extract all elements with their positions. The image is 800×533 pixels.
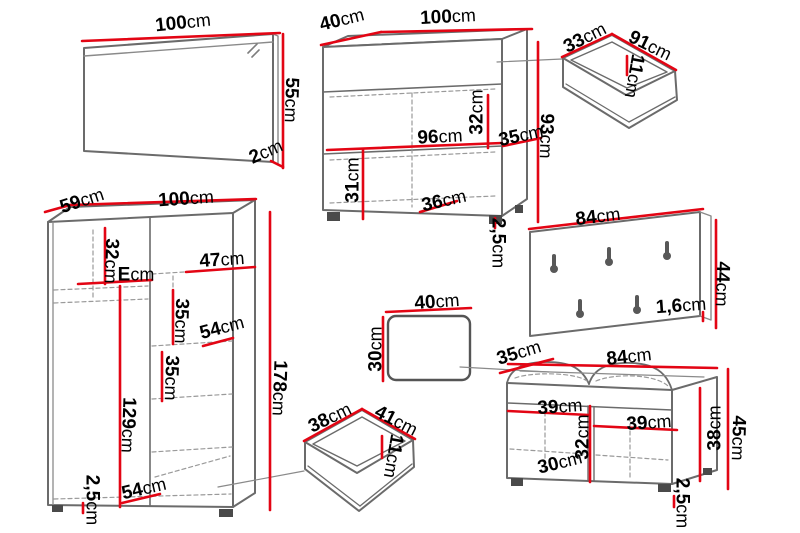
unit-suffix: cm	[705, 405, 725, 429]
unit-suffix: cm	[83, 501, 103, 525]
dim-chest-plinth: 2,5cm	[489, 218, 508, 268]
dim-chest-height: 93cm	[536, 113, 557, 159]
unit-suffix: cm	[281, 98, 302, 123]
dim-coat-panel-height: 44cm	[712, 261, 733, 307]
unit-suffix: cm	[380, 452, 404, 479]
unit-suffix: cm	[343, 157, 363, 181]
dim-wardrobe-plinth: 2,5cm	[83, 475, 102, 525]
unit-suffix: cm	[186, 10, 212, 32]
unit-suffix: cm	[366, 326, 386, 350]
dim-chest-width: 100cm	[420, 6, 477, 28]
dim-wardrobe-lower-section: 35cm	[161, 355, 182, 401]
coat-panel-drawing	[529, 209, 716, 336]
unit-suffix: cm	[435, 290, 460, 312]
unit-suffix: cm	[712, 282, 733, 307]
unit-suffix: cm	[536, 134, 557, 159]
unit-suffix: cm	[558, 395, 583, 417]
unit-suffix: cm	[728, 436, 749, 461]
unit-suffix: cm	[220, 248, 245, 270]
dim-chest-lower-inner-height: 31cm	[344, 157, 363, 202]
unit-suffix: cm	[438, 125, 463, 146]
dim-wardrobe-shelf-e: Ecm	[118, 266, 155, 285]
unit-suffix: cm	[489, 244, 509, 268]
dim-wardrobe-width: 100cm	[158, 188, 215, 211]
dim-wardrobe-hanging-space: 129cm	[118, 397, 139, 453]
dim-bench-right-compartment: 39cm	[626, 412, 672, 434]
unit-suffix: cm	[161, 376, 182, 401]
unit-suffix: cm	[626, 344, 652, 366]
dim-bench-height: 45cm	[728, 415, 749, 461]
dim-mirror-height: 55cm	[281, 77, 302, 123]
dim-chest-inner-width: 96cm	[417, 126, 463, 147]
dim-chest-inner-height: 32cm	[468, 89, 487, 134]
dim-bench-plinth: 2,5cm	[673, 478, 692, 528]
unit-suffix: cm	[171, 319, 192, 344]
unit-suffix: cm	[269, 392, 290, 417]
dim-bench-inner-height: 38cm	[706, 405, 725, 450]
furniture-dimension-diagram: 100cm 55cm 2cm 40cm 100cm 32cm 96cm 35cm…	[0, 0, 800, 533]
dim-cushion-width: 40cm	[414, 291, 460, 313]
unit-suffix: cm	[673, 504, 693, 528]
dim-wardrobe-mid-section: 35cm	[171, 298, 192, 344]
unit-suffix: cm	[647, 411, 672, 433]
unit-suffix: cm	[189, 187, 214, 209]
unit-suffix: cm	[621, 72, 645, 99]
unit-suffix: cm	[118, 429, 139, 454]
dim-coat-panel-thickness: 1,6cm	[655, 295, 707, 317]
unit-suffix: cm	[595, 204, 621, 227]
dim-wardrobe-height: 178cm	[269, 360, 290, 416]
unit-suffix: cm	[451, 5, 476, 26]
bench-drawing	[500, 359, 728, 507]
unit-suffix: cm	[573, 414, 593, 438]
unit-suffix: cm	[681, 294, 706, 316]
dim-wardrobe-shelf-right: 47cm	[199, 249, 245, 271]
dim-cushion-height: 30cm	[367, 326, 386, 371]
unit-suffix: cm	[467, 89, 487, 113]
unit-suffix: cm	[130, 265, 154, 285]
leader-chest-to-drawer	[497, 59, 562, 62]
